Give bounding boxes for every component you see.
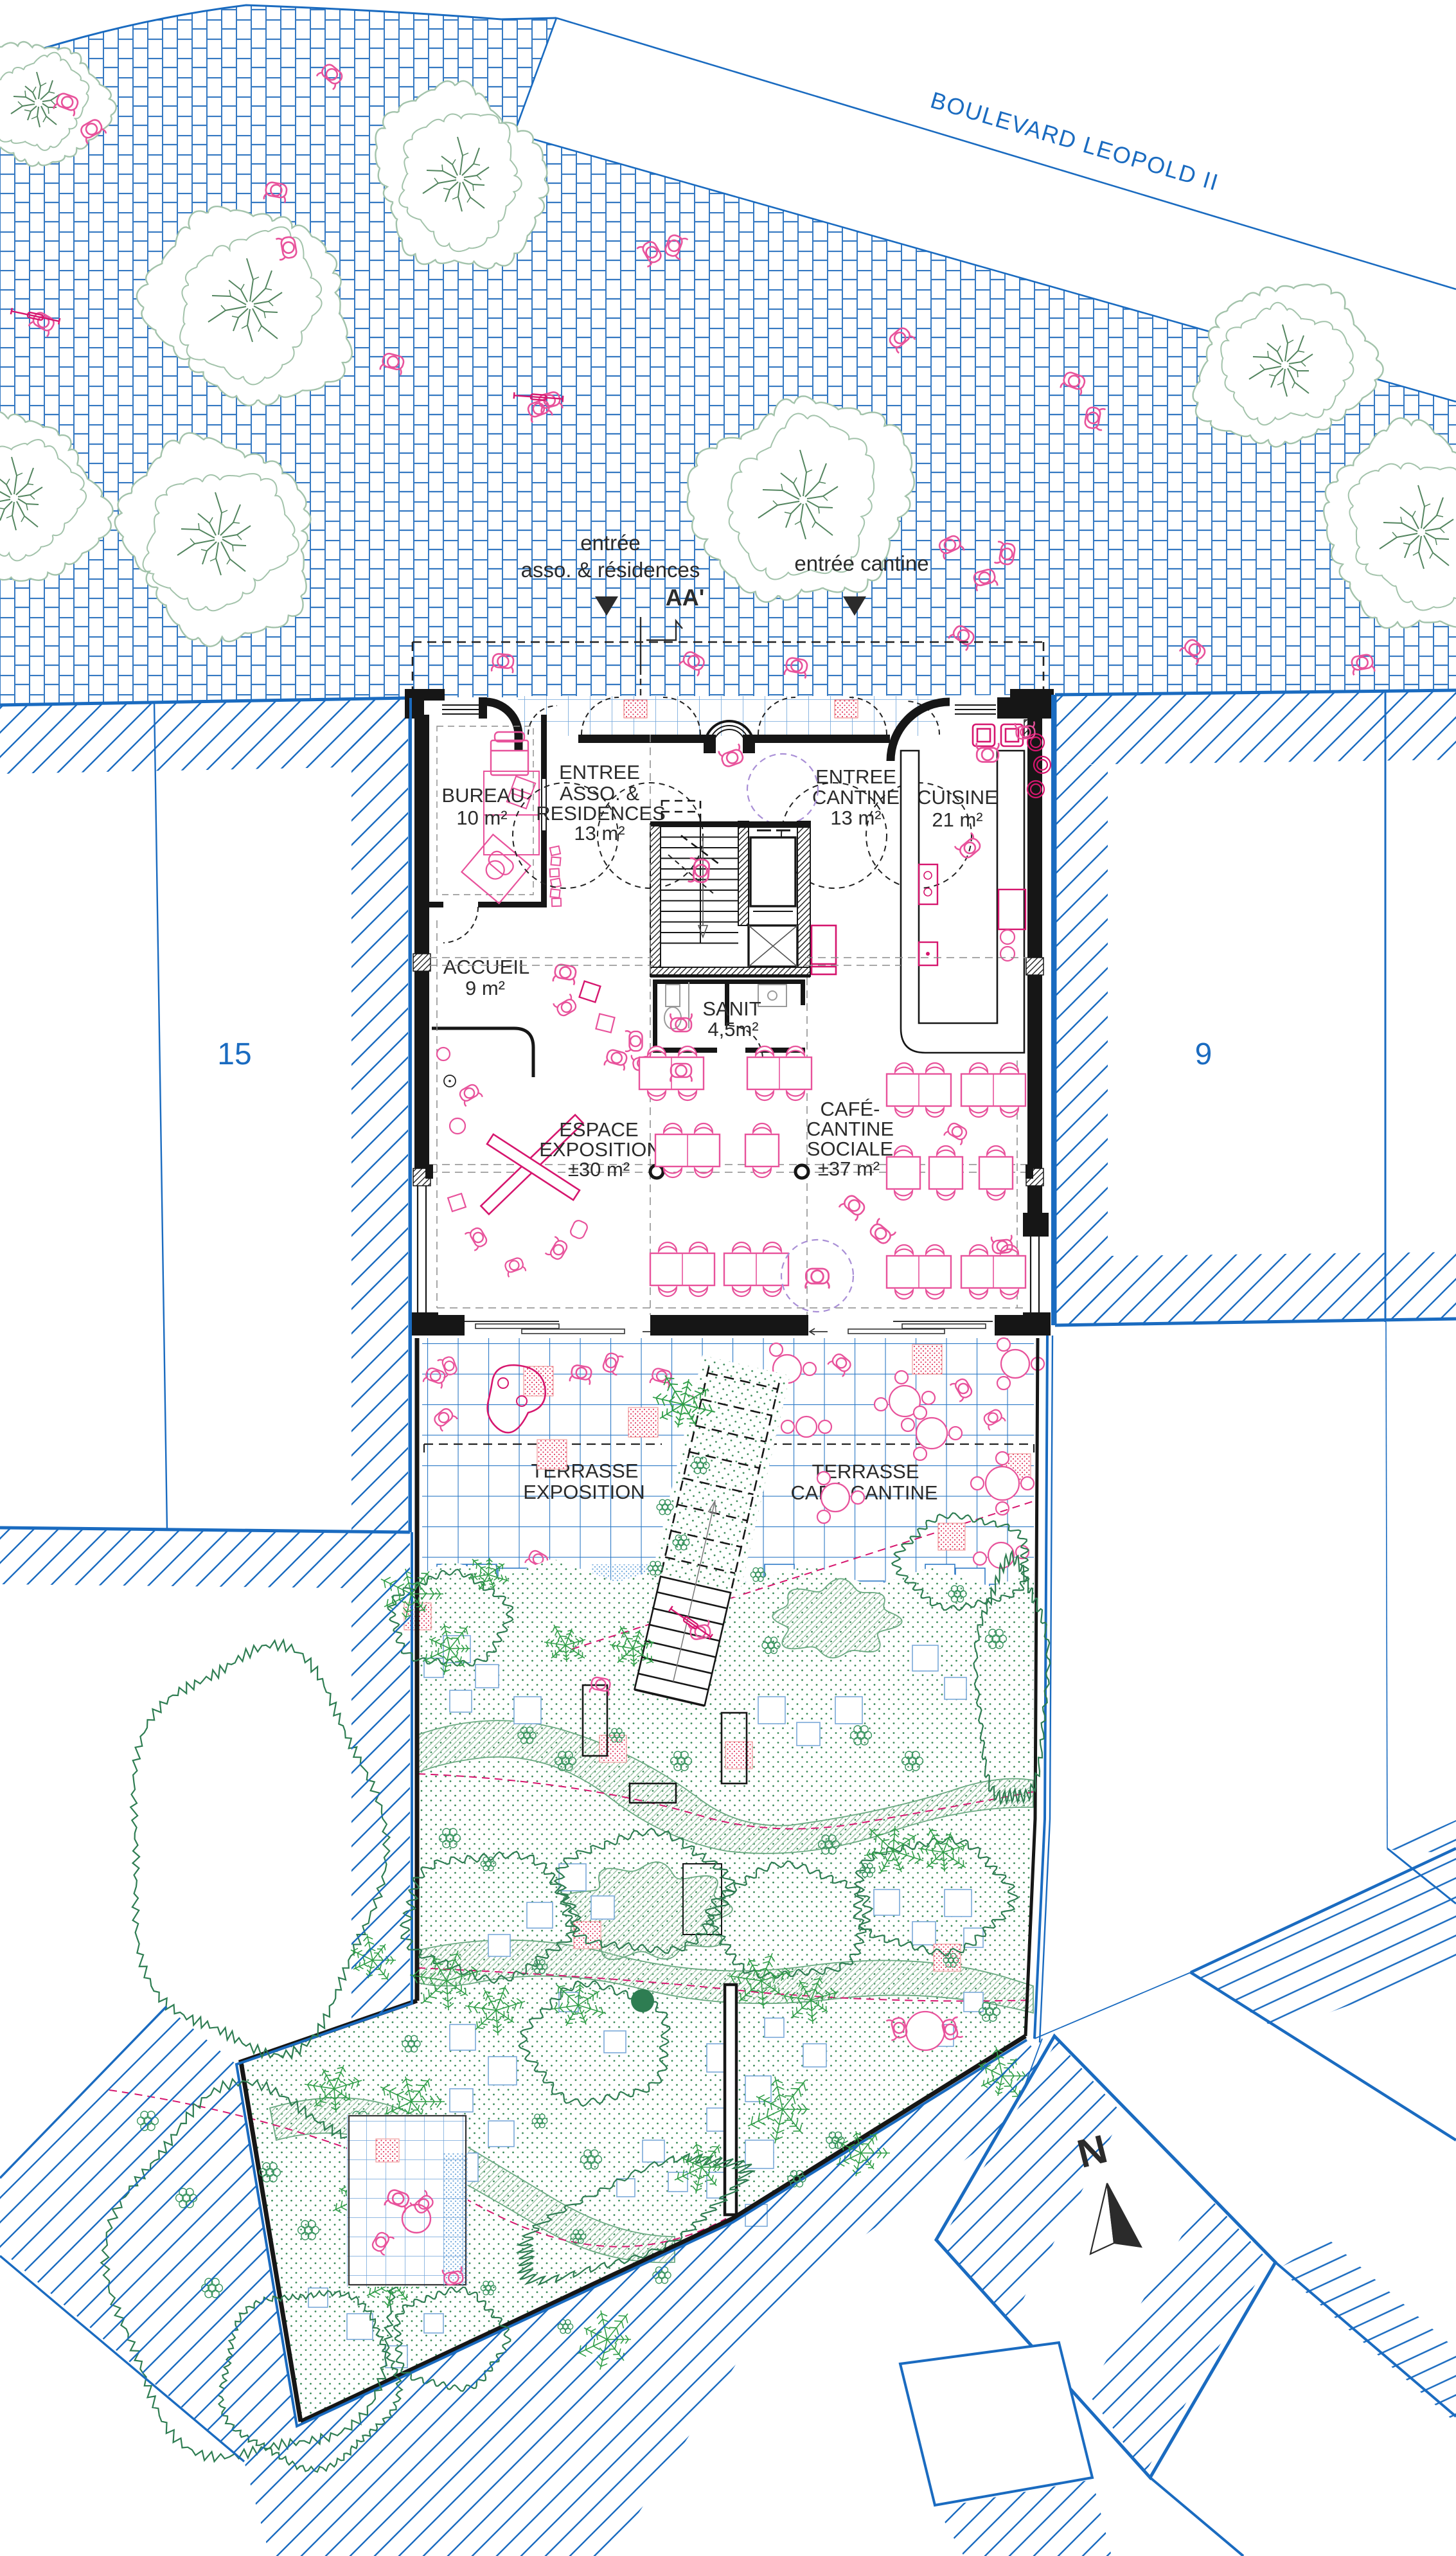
svg-text:EXPOSITION: EXPOSITION — [523, 1481, 644, 1503]
svg-text:±37 m²: ±37 m² — [818, 1157, 880, 1180]
svg-text:CANTINE: CANTINE — [812, 786, 900, 809]
svg-text:9 m²: 9 m² — [465, 977, 505, 999]
svg-text:CAFÉ-: CAFÉ- — [821, 1098, 880, 1120]
svg-text:entrée: entrée — [580, 531, 641, 555]
svg-text:CUISINE: CUISINE — [917, 786, 998, 809]
svg-text:entrée cantine: entrée cantine — [794, 551, 928, 575]
svg-text:ENTREE: ENTREE — [559, 761, 640, 783]
svg-text:ENTREE: ENTREE — [815, 765, 896, 788]
svg-text:AA': AA' — [666, 584, 705, 611]
svg-text:4,5m²: 4,5m² — [707, 1018, 758, 1041]
svg-text:CANTINE: CANTINE — [806, 1118, 894, 1140]
svg-text:BUREAU: BUREAU — [441, 784, 524, 807]
svg-text:10 m²: 10 m² — [456, 807, 507, 829]
svg-text:13 m²: 13 m² — [830, 807, 881, 829]
svg-text:RESIDENCES: RESIDENCES — [536, 802, 666, 825]
svg-text:9: 9 — [1195, 1037, 1212, 1071]
svg-text:15: 15 — [217, 1037, 251, 1071]
svg-text:asso. & résidences: asso. & résidences — [521, 558, 700, 582]
svg-text:SOCIALE: SOCIALE — [807, 1138, 893, 1160]
svg-text:ASSO. &: ASSO. & — [560, 782, 639, 805]
svg-text:±30 m²: ±30 m² — [568, 1158, 630, 1181]
svg-text:21 m²: 21 m² — [932, 809, 982, 831]
svg-text:ACCUEIL: ACCUEIL — [443, 956, 529, 978]
svg-text:SANIT: SANIT — [702, 997, 761, 1020]
svg-text:EXPOSITION: EXPOSITION — [539, 1138, 661, 1161]
svg-text:ESPACE: ESPACE — [559, 1118, 638, 1141]
